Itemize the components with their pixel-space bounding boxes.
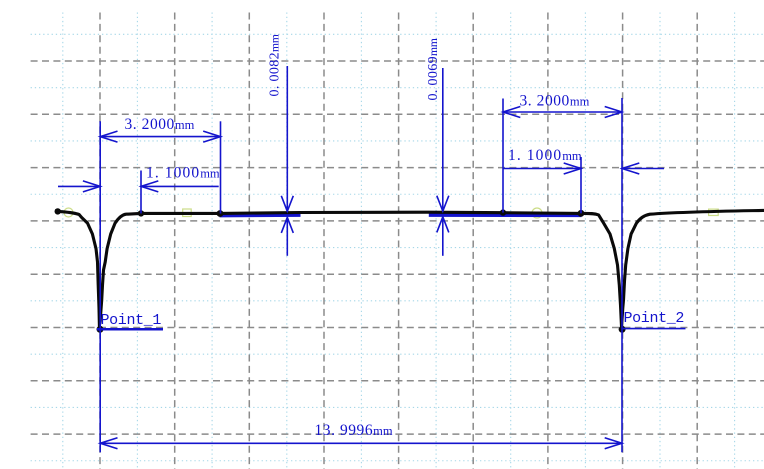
svg-text:3. 2000mm: 3. 2000mm	[125, 116, 195, 133]
svg-text:13. 9996mm: 13. 9996mm	[315, 422, 393, 439]
svg-text:3. 2000mm: 3. 2000mm	[520, 93, 590, 110]
svg-text:0. 0082mm: 0. 0082mm	[268, 34, 283, 96]
svg-text:1. 1000mm: 1. 1000mm	[508, 147, 582, 164]
svg-text:Point_2: Point_2	[624, 310, 685, 327]
svg-text:Point_1: Point_1	[101, 312, 162, 329]
svg-text:1. 1000mm: 1. 1000mm	[146, 165, 220, 182]
svg-text:0. 0069mm: 0. 0069mm	[426, 38, 441, 100]
